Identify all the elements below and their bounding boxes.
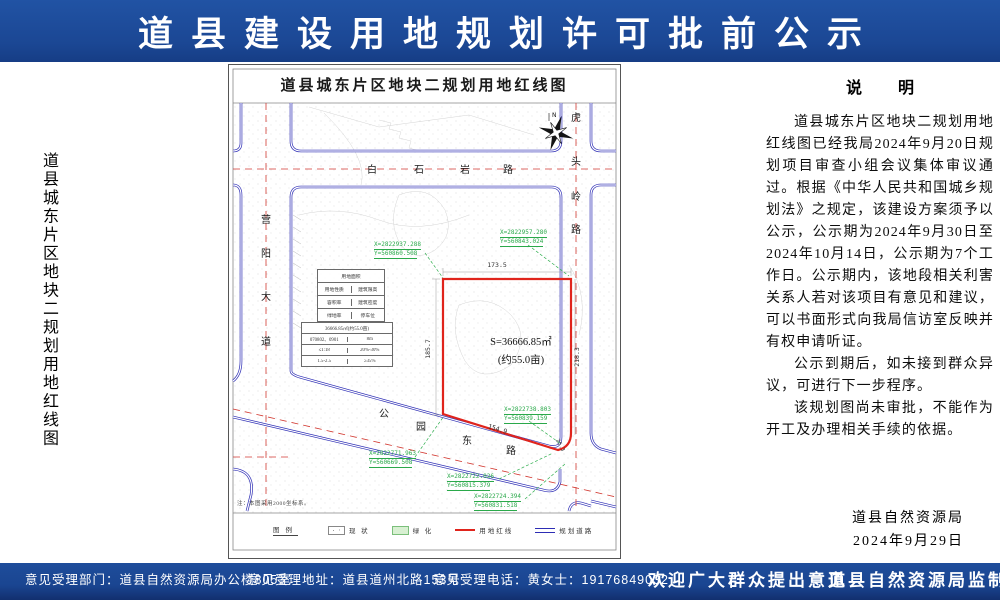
coordinate-system-note: 注：本图采用2000坐标系。 bbox=[237, 499, 310, 507]
redline-map-drawing: 173.5 185.7 218.3 154.9 25.3 N 白 石 岩 路 营 bbox=[229, 65, 620, 558]
header-banner: 道县建设用地规划许可批前公示 bbox=[0, 0, 1000, 62]
signature-block: 道县自然资源局 2024年9月29日 bbox=[852, 507, 964, 553]
map-title: 道县城东片区地块二规划用地红线图 bbox=[229, 74, 620, 95]
svg-text:路: 路 bbox=[571, 223, 581, 236]
coord-label: X=2822771.963Y=560669.508 bbox=[369, 450, 416, 468]
coord-label: X=2822722.026Y=560815.379 bbox=[447, 473, 494, 491]
svg-text:岭: 岭 bbox=[571, 190, 581, 203]
svg-text:营: 营 bbox=[261, 213, 271, 226]
dim-left: 185.7 bbox=[424, 339, 432, 359]
footer-bar: 意见受理部门：道县自然资源局办公楼805室 意见受理地址：道县道州北路153号 … bbox=[0, 563, 1000, 600]
side-vertical-title: 道县城东片区地块二规划用地红线图 bbox=[36, 152, 60, 462]
notice-panel: 说 明 道县城东片区地块二规划用地红线图已经我局2024年9月20日规划项目审查… bbox=[766, 74, 994, 442]
svg-text:头: 头 bbox=[571, 156, 581, 168]
notice-page: 道县建设用地规划许可批前公示 道县城东片区地块二规划用地红线图 bbox=[0, 0, 1000, 600]
parcel-area-mu: (约55.0亩) bbox=[465, 352, 577, 370]
footer-address: 意见受理地址：道县道州北路153号 bbox=[248, 563, 461, 594]
land-use-value-table: 36666.85㎡(约55.0亩) 070802、09018m ≤1:1820%… bbox=[301, 322, 393, 367]
dim-top: 173.5 bbox=[487, 261, 507, 269]
notice-heading: 说 明 bbox=[766, 74, 994, 98]
svg-text:阳: 阳 bbox=[261, 248, 271, 260]
existing-swatch-icon bbox=[328, 526, 345, 535]
parcel-area-value: S=36666.85㎡ bbox=[465, 334, 577, 352]
compass-n-label: N bbox=[552, 112, 557, 119]
svg-text:道: 道 bbox=[261, 335, 271, 348]
banner-title: 道县建设用地规划许可批前公示 bbox=[120, 6, 880, 57]
legend-item-existing: 现 状 bbox=[328, 525, 370, 535]
map-panel: 173.5 185.7 218.3 154.9 25.3 N 白 石 岩 路 营 bbox=[228, 64, 621, 559]
planned-road-swatch-icon bbox=[535, 528, 555, 533]
svg-text:路: 路 bbox=[503, 163, 513, 176]
greenery-swatch-icon bbox=[392, 526, 409, 535]
legend-item-redline: 用地红线 bbox=[455, 525, 513, 535]
signature-date: 2024年9月29日 bbox=[852, 530, 964, 553]
notice-paragraph: 公示到期后，如未接到群众异议，可进行下一步程序。 bbox=[766, 354, 994, 398]
footer-welcome: 欢迎广大群众提出意见 bbox=[648, 563, 848, 594]
parcel-area-label: S=36666.85㎡ (约55.0亩) bbox=[465, 334, 577, 370]
coord-label: X=2822957.280Y=560843.024 bbox=[500, 229, 547, 247]
svg-text:园: 园 bbox=[416, 421, 426, 433]
footer-phone: 意见受理电话：黄女士：19176849032 bbox=[433, 563, 669, 594]
svg-text:公: 公 bbox=[379, 409, 389, 420]
svg-text:白: 白 bbox=[367, 163, 377, 176]
footer-producer: 道县自然资源局监制 bbox=[828, 563, 1000, 594]
redline-swatch-icon bbox=[455, 529, 475, 531]
map-legend: 图例 现 状 绿 化 用地红线 规划道路 bbox=[229, 517, 620, 543]
svg-text:石: 石 bbox=[414, 165, 424, 176]
svg-text:东: 东 bbox=[462, 434, 472, 447]
coord-label: X=2822937.288Y=560860.508 bbox=[374, 241, 421, 259]
legend-item-road: 规划道路 bbox=[535, 525, 593, 535]
land-use-header-table: 用地面积 用地性质建筑限高 容积率建筑密度 绿地率停车位 bbox=[317, 269, 385, 322]
svg-text:大: 大 bbox=[261, 290, 271, 303]
notice-paragraph: 道县城东片区地块二规划用地红线图已经我局2024年9月20日规划项目审查小组会议… bbox=[766, 112, 994, 354]
coord-label: X=2822738.803Y=560839.159 bbox=[504, 406, 551, 424]
signature-org: 道县自然资源局 bbox=[852, 507, 964, 530]
svg-text:路: 路 bbox=[506, 444, 516, 457]
svg-text:虎: 虎 bbox=[571, 112, 581, 124]
svg-text:岩: 岩 bbox=[460, 163, 470, 176]
coord-label: X=2822724.394Y=560831.518 bbox=[474, 493, 521, 511]
legend-title: 图例 bbox=[273, 524, 298, 536]
notice-paragraph: 该规划图尚未审批，不能作为开工及办理相关手续的依据。 bbox=[766, 398, 994, 442]
legend-item-green: 绿 化 bbox=[392, 525, 434, 535]
